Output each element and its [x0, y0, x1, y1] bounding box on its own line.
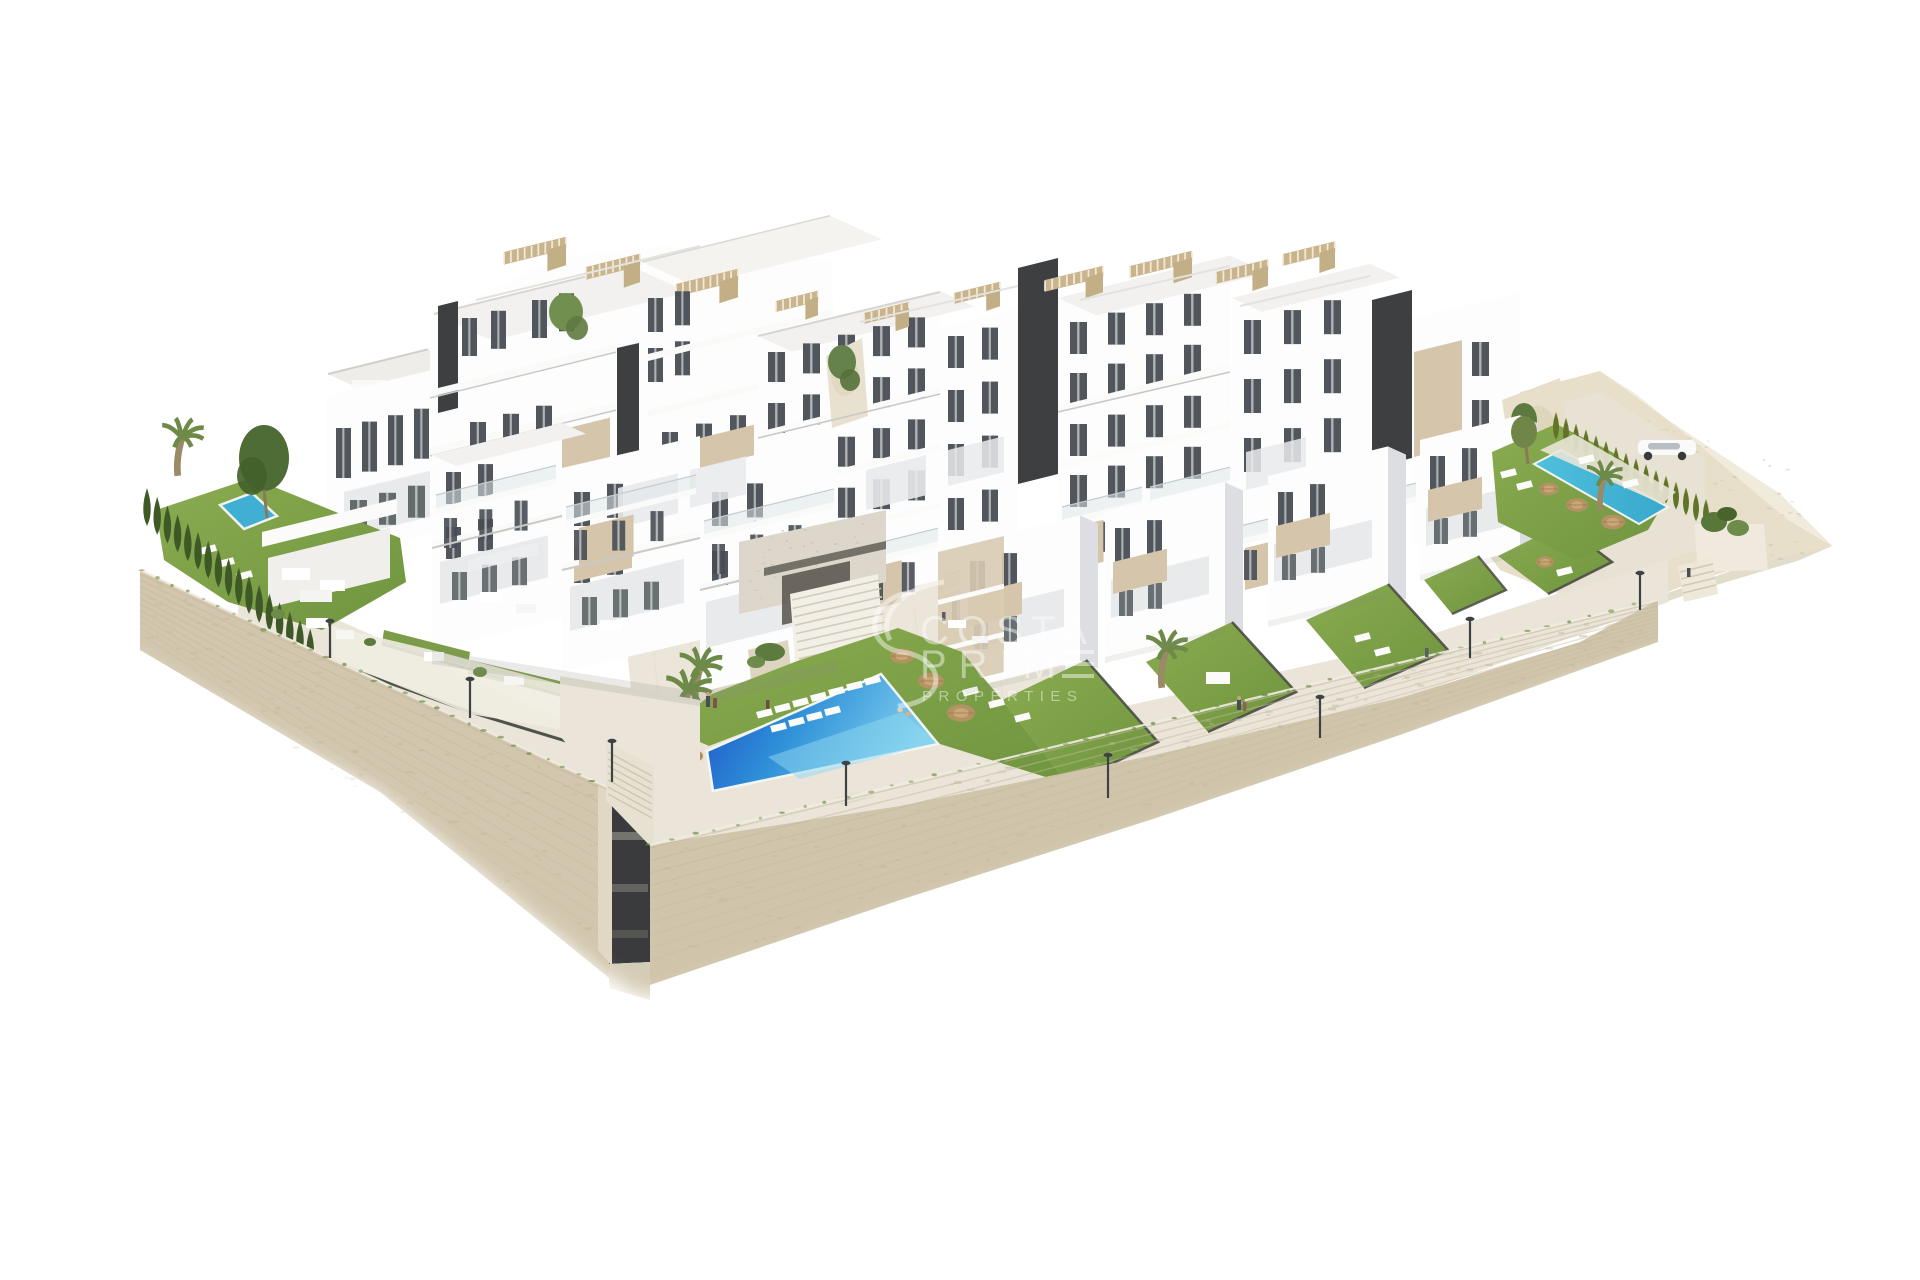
svg-text:PRIM: PRIM [920, 643, 1068, 687]
svg-text:PROPERTIES: PROPERTIES [922, 688, 1083, 705]
